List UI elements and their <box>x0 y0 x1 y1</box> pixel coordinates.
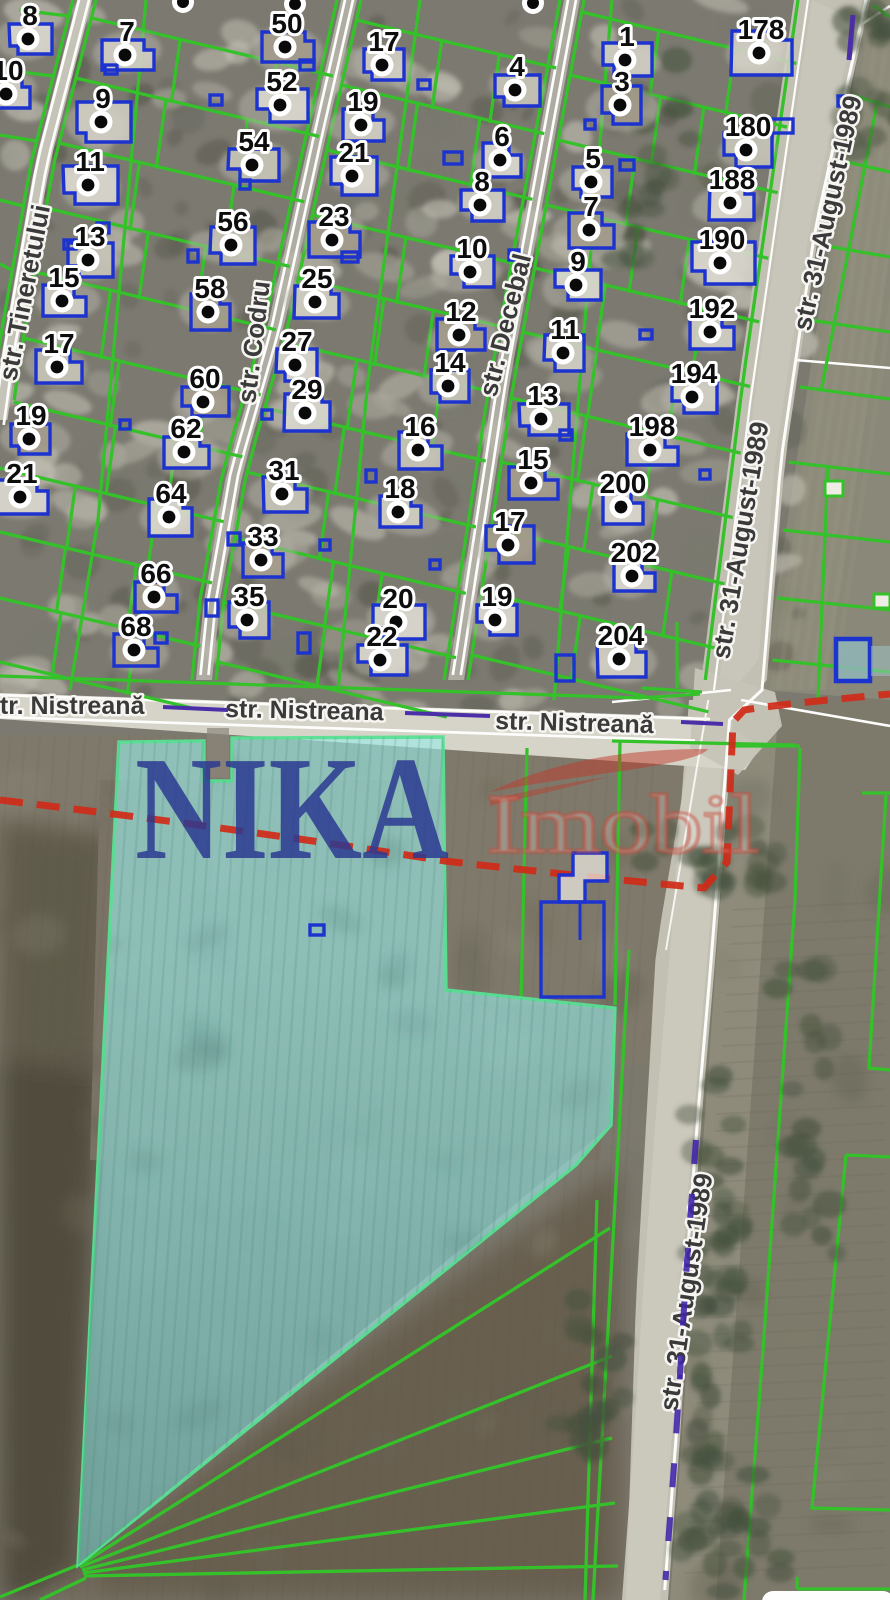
svg-text:19: 19 <box>347 86 378 117</box>
svg-text:str. Nistreana: str. Nistreana <box>225 695 385 726</box>
svg-text:8: 8 <box>474 166 490 197</box>
svg-text:180: 180 <box>725 111 772 142</box>
svg-text:202: 202 <box>611 537 658 568</box>
svg-text:56: 56 <box>217 206 248 237</box>
svg-text:60: 60 <box>189 363 220 394</box>
svg-text:27: 27 <box>281 326 312 357</box>
svg-text:6: 6 <box>494 121 510 152</box>
svg-text:17: 17 <box>494 506 525 537</box>
svg-text:192: 192 <box>689 293 736 324</box>
svg-text:3: 3 <box>614 66 630 97</box>
svg-text:178: 178 <box>738 14 785 45</box>
svg-text:23: 23 <box>318 201 349 232</box>
svg-text:15: 15 <box>517 444 548 475</box>
svg-text:10: 10 <box>456 233 487 264</box>
svg-text:200: 200 <box>600 468 647 499</box>
svg-text:19: 19 <box>15 400 46 431</box>
svg-text:62: 62 <box>170 413 201 444</box>
svg-text:9: 9 <box>95 83 111 114</box>
svg-text:31: 31 <box>268 455 299 486</box>
svg-text:11: 11 <box>550 314 580 345</box>
svg-text:4: 4 <box>509 51 525 82</box>
svg-text:29: 29 <box>291 374 322 405</box>
svg-text:188: 188 <box>709 164 756 195</box>
svg-text:12: 12 <box>445 296 476 327</box>
svg-text:198: 198 <box>629 411 676 442</box>
svg-text:194: 194 <box>671 358 718 389</box>
svg-text:18: 18 <box>384 473 415 504</box>
svg-text:13: 13 <box>74 221 105 252</box>
svg-text:21: 21 <box>6 458 37 489</box>
svg-text:17: 17 <box>43 328 74 359</box>
svg-text:64: 64 <box>155 478 187 509</box>
svg-text:Imobil: Imobil <box>487 778 759 871</box>
svg-text:50: 50 <box>271 8 302 39</box>
svg-text:str. Nistreană: str. Nistreană <box>495 707 655 739</box>
svg-text:1: 1 <box>619 21 635 52</box>
svg-text:58: 58 <box>194 273 225 304</box>
svg-text:66: 66 <box>140 558 171 589</box>
svg-text:33: 33 <box>247 521 278 552</box>
svg-text:190: 190 <box>699 224 746 255</box>
svg-text:7: 7 <box>119 16 135 47</box>
svg-text:13: 13 <box>527 380 558 411</box>
svg-text:5: 5 <box>585 143 601 174</box>
svg-text:19: 19 <box>481 581 512 612</box>
svg-text:35: 35 <box>233 581 264 612</box>
svg-text:10: 10 <box>0 55 24 86</box>
svg-text:20: 20 <box>382 583 413 614</box>
svg-text:17: 17 <box>368 26 399 57</box>
svg-text:NIKA: NIKA <box>135 727 449 891</box>
svg-text:15: 15 <box>48 262 79 293</box>
svg-text:204: 204 <box>598 620 645 651</box>
svg-text:54: 54 <box>238 126 270 157</box>
svg-text:9: 9 <box>570 246 586 277</box>
svg-text:25: 25 <box>301 263 332 294</box>
svg-text:21: 21 <box>338 137 369 168</box>
svg-text:7: 7 <box>583 191 599 222</box>
svg-text:14: 14 <box>434 347 466 378</box>
svg-text:8: 8 <box>22 0 38 31</box>
svg-text:str. Nistreană: str. Nistreană <box>0 692 146 720</box>
svg-text:22: 22 <box>366 621 397 652</box>
svg-text:16: 16 <box>404 411 435 442</box>
svg-text:52: 52 <box>266 66 297 97</box>
svg-text:68: 68 <box>120 611 151 642</box>
svg-text:11: 11 <box>75 146 105 177</box>
